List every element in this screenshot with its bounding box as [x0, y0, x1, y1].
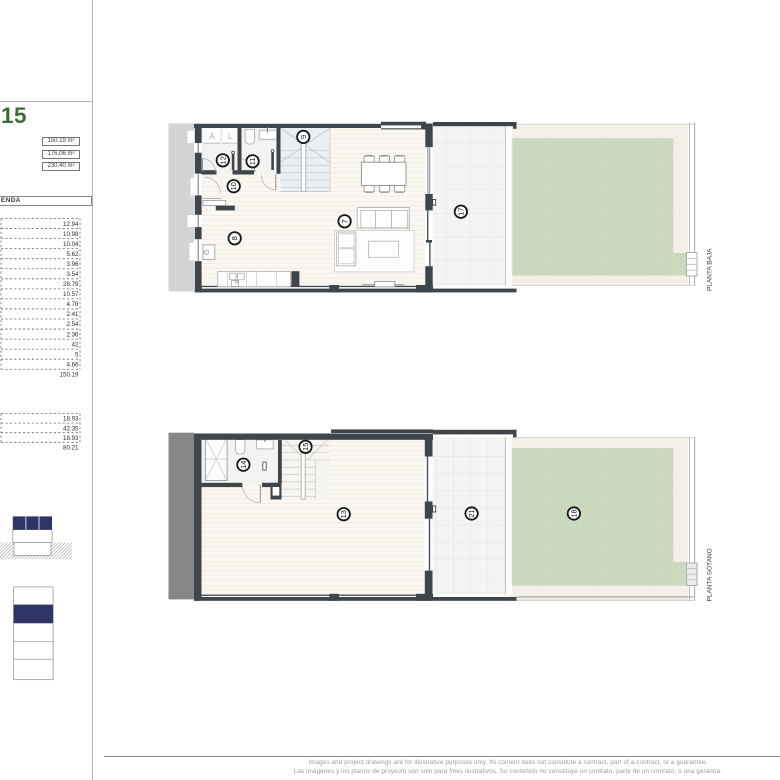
svg-text:4.66: 4.66 [66, 361, 79, 368]
svg-text:12.94: 12.94 [63, 221, 79, 228]
svg-text:10.57: 10.57 [63, 291, 79, 298]
svg-text:42.35: 42.35 [63, 425, 79, 432]
svg-text:10.98: 10.98 [63, 231, 79, 238]
svg-text:150.19: 150.19 [60, 372, 79, 379]
svg-text:9: 9 [299, 135, 308, 139]
svg-text:28.79: 28.79 [63, 281, 79, 288]
svg-text:2.36: 2.36 [66, 331, 79, 338]
svg-text:18: 18 [569, 509, 578, 517]
svg-text:12: 12 [218, 156, 227, 164]
svg-text:2.41: 2.41 [66, 311, 79, 318]
svg-text:PLANTA SÓTANO: PLANTA SÓTANO [705, 548, 714, 601]
svg-text:L: L [228, 131, 233, 141]
svg-text:2.54: 2.54 [66, 321, 79, 328]
svg-text:10.04: 10.04 [63, 241, 79, 248]
svg-text:42: 42 [72, 341, 79, 348]
svg-text:7: 7 [340, 219, 349, 223]
svg-text:5: 5 [75, 351, 79, 358]
svg-text:3.54: 3.54 [66, 271, 79, 278]
svg-text:11: 11 [248, 157, 257, 165]
svg-text:18.93: 18.93 [63, 416, 79, 423]
svg-text:21: 21 [467, 509, 476, 517]
svg-text:80.21: 80.21 [63, 445, 79, 452]
svg-text:14: 14 [239, 461, 248, 469]
svg-text:8: 8 [230, 236, 239, 240]
svg-text:PLANTA BAJA: PLANTA BAJA [707, 248, 714, 291]
svg-text:15: 15 [301, 443, 310, 451]
svg-text:13: 13 [339, 510, 348, 518]
svg-text:3.96: 3.96 [66, 261, 79, 268]
svg-text:A: A [209, 131, 215, 141]
svg-text:4.78: 4.78 [66, 301, 79, 308]
svg-text:18.93: 18.93 [63, 435, 79, 442]
svg-text:10: 10 [229, 182, 238, 190]
svg-text:5.62: 5.62 [66, 251, 79, 258]
svg-text:17: 17 [456, 208, 465, 216]
